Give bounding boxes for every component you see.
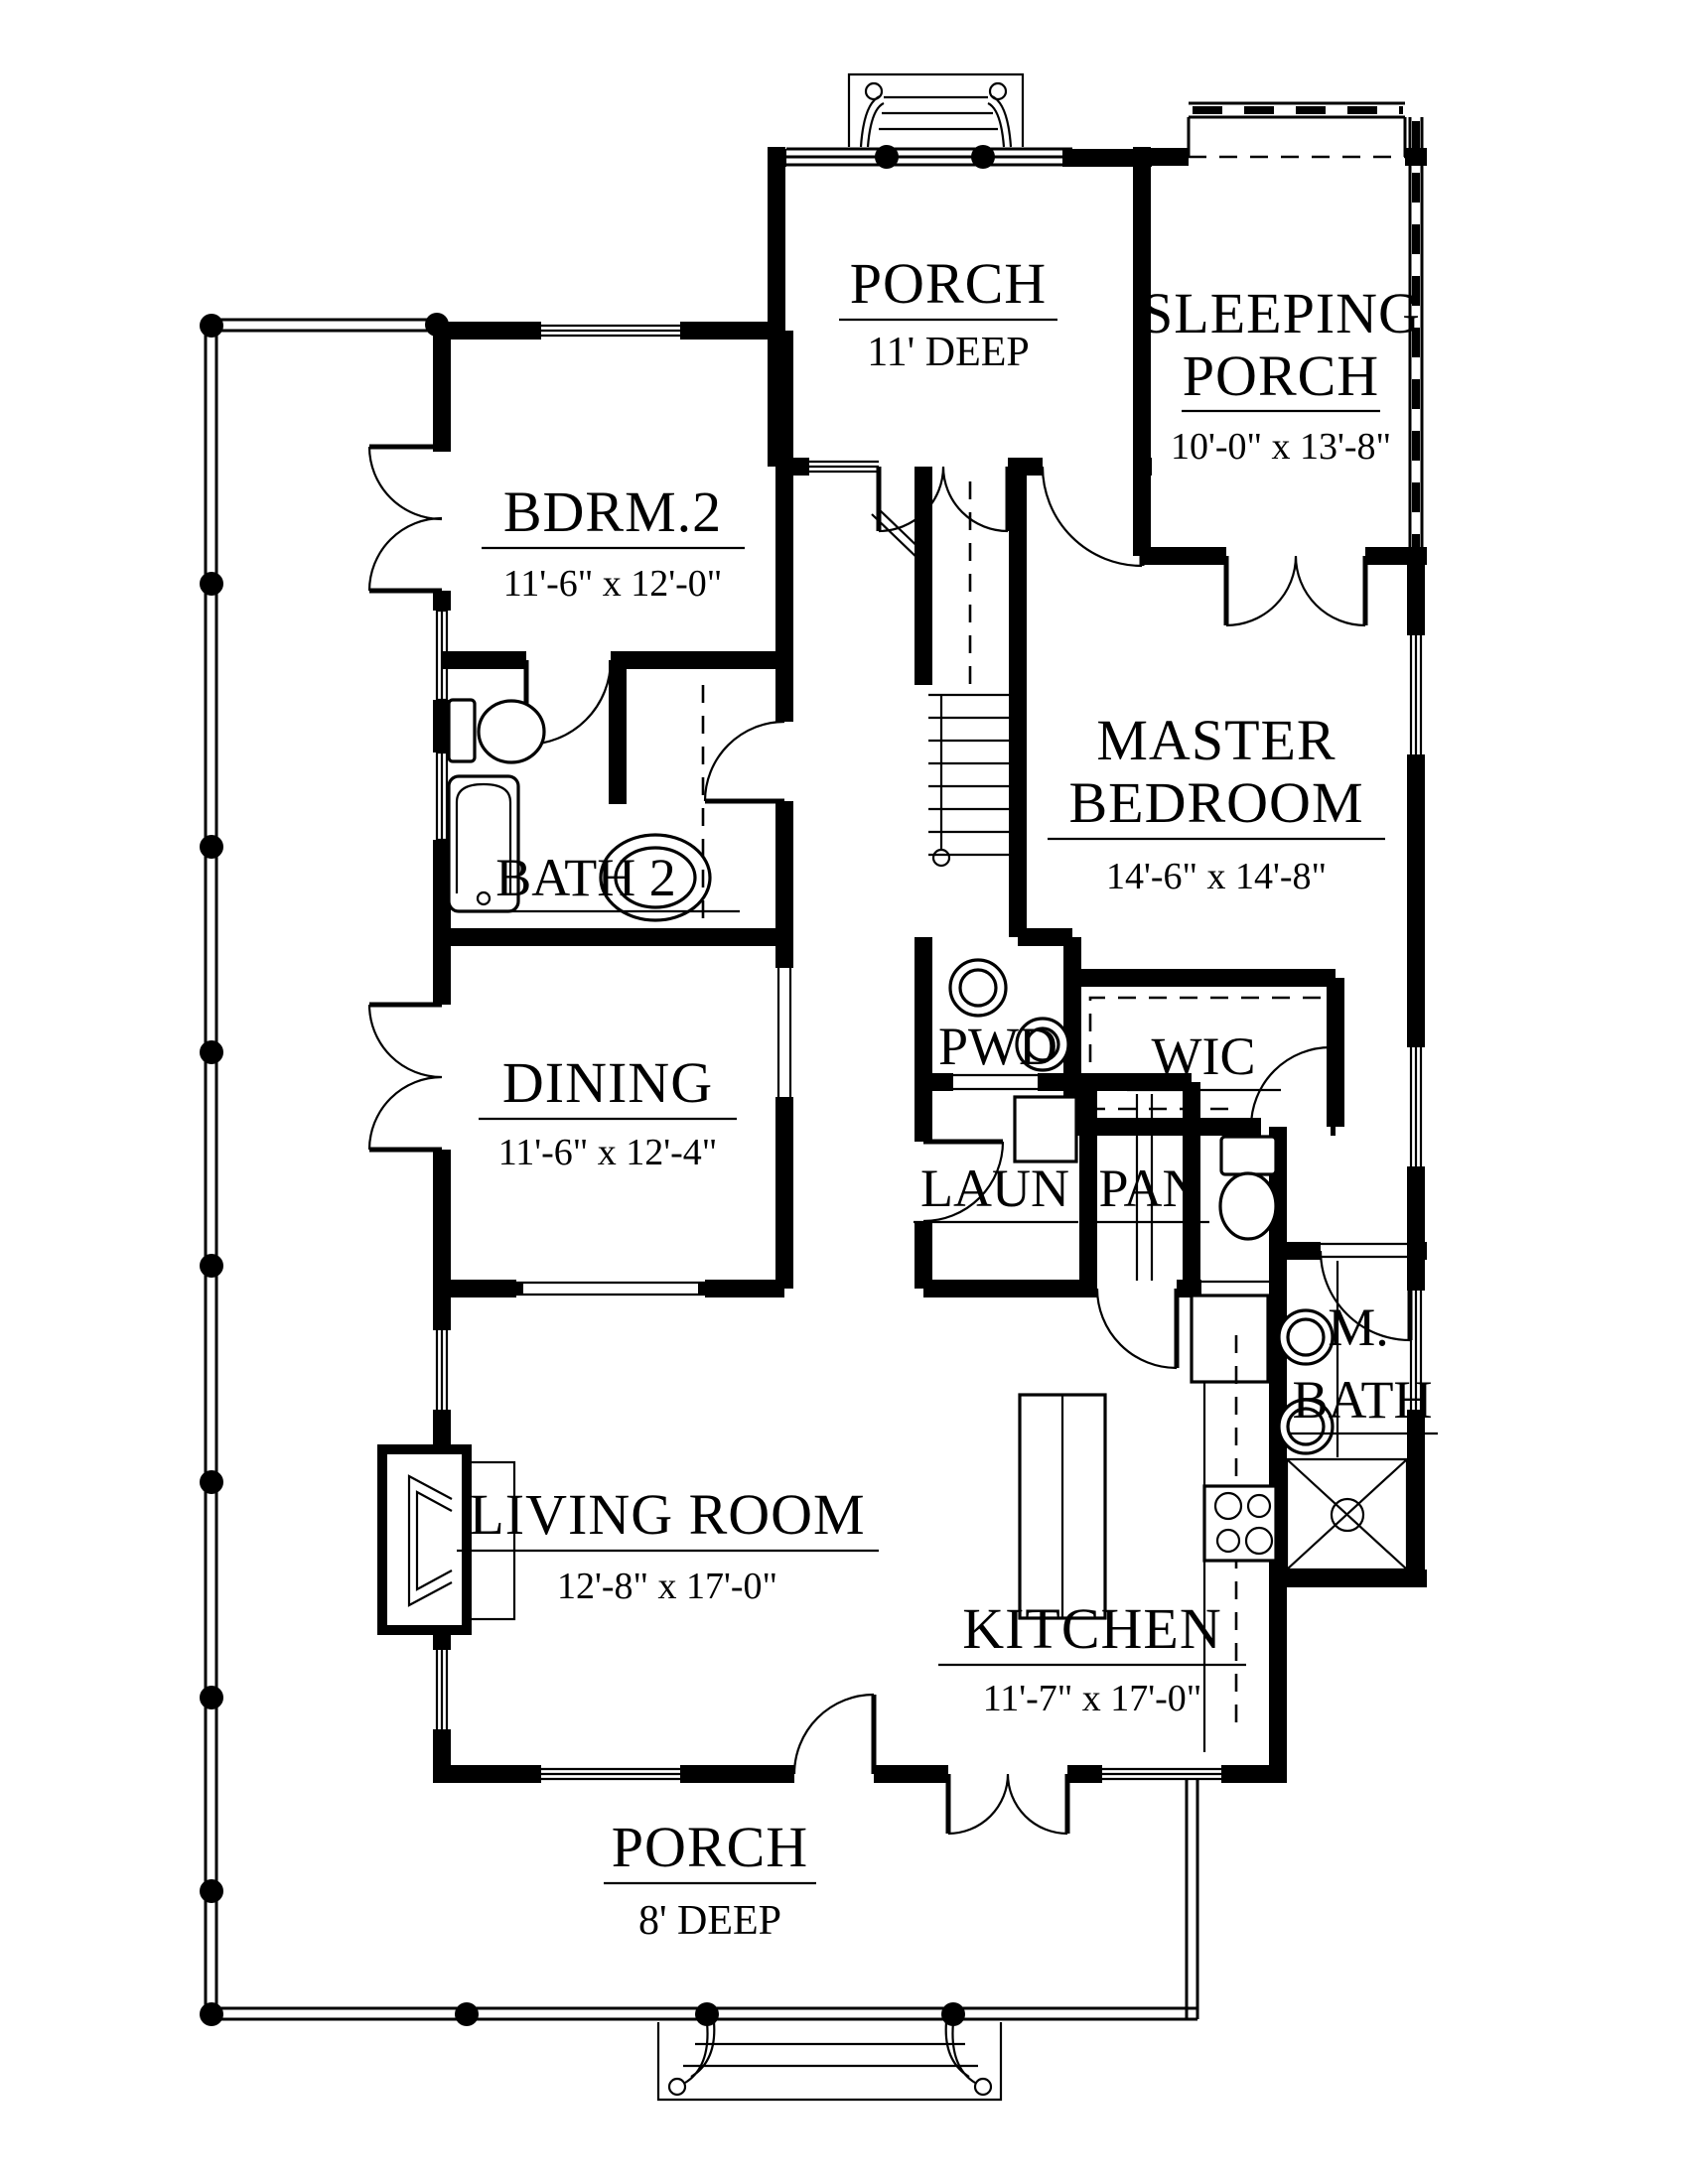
step-outline [658,2022,1001,2100]
porch-column [200,314,223,338]
porch-column [200,1686,223,1709]
label-living-name: LIVING ROOM [469,1482,865,1547]
label-dining-dim: 11'-6" x 12'-4" [498,1132,718,1173]
porch-column [455,2002,479,2026]
step-rails [861,96,1011,147]
label-living-dim: 12'-8" x 17'-0" [557,1566,777,1607]
toilet-bowl [1220,1173,1276,1239]
porch-column [875,145,899,169]
label-master-line1: MASTER [1096,708,1336,772]
label-sleeping-porch-line2: PORCH [1183,343,1379,408]
step-rails [685,2022,975,2083]
label-laundry-name: LAUN [920,1159,1069,1218]
label-porch-top-name: PORCH [850,251,1047,316]
newel-post [866,83,882,99]
label-bdrm2-dim: 11'-6" x 12'-0" [503,563,723,605]
label-bath2-name: BATH 2 [495,848,676,907]
washer [1015,1097,1076,1161]
porch-column [971,145,995,169]
label-kitchen-name: KITCHEN [962,1596,1222,1661]
staircase [928,481,1009,866]
front-entry-steps-bottom [658,2022,1001,2100]
porch-column [200,1254,223,1278]
porch-column [200,1470,223,1494]
label-dining-name: DINING [502,1050,713,1115]
refrigerator [1192,1296,1268,1382]
sink-basin [1288,1319,1324,1355]
newel-post [975,2079,991,2095]
label-pwd-name: PWD [938,1017,1057,1076]
firebox [409,1476,452,1605]
porch-column [200,1040,223,1064]
porch-column [200,2002,223,2026]
shower-pan [1287,1459,1407,1570]
stair-newel [933,850,949,866]
newel-post [990,83,1006,99]
porch-column [200,572,223,596]
porch-column [200,1879,223,1903]
room-labels: PORCH 11' DEEP SLEEPING PORCH 10'-0" x 1… [457,251,1438,1944]
fireplace-box [382,1449,467,1630]
label-master-line2: BEDROOM [1068,770,1363,835]
opening-post [509,1282,523,1296]
label-pantry-name: PAN [1098,1159,1200,1218]
toilet-tank [1221,1137,1276,1174]
label-kitchen-dim: 11'-7" x 17'-0" [983,1678,1202,1719]
opening-post [698,1282,712,1296]
label-wic-name: WIC [1152,1026,1256,1086]
label-porch-bottom-name: PORCH [612,1815,808,1879]
label-sleeping-porch-line1: SLEEPING [1141,281,1421,345]
label-porch-bottom-dim: 8' DEEP [638,1898,781,1944]
label-bdrm2-name: BDRM.2 [503,479,722,544]
sink-bowl [479,701,544,762]
sink-pedestal [449,700,475,761]
toilet-seat [960,970,996,1006]
floor-plan-sheet: PORCH 11' DEEP SLEEPING PORCH 10'-0" x 1… [0,0,1688,2184]
label-sleeping-porch-dim: 10'-0" x 13'-8" [1171,426,1391,468]
front-entry-steps-top [849,74,1023,147]
label-porch-top-dim: 11' DEEP [867,330,1030,375]
water-closet-fixtures [1220,1137,1276,1239]
label-master-bath-line1: M. [1328,1297,1389,1357]
label-master-dim: 14'-6" x 14'-8" [1106,856,1327,897]
porch-column [200,835,223,859]
label-master-bath-line2: BATH [1292,1370,1432,1430]
floor-plan-svg: PORCH 11' DEEP SLEEPING PORCH 10'-0" x 1… [0,0,1688,2184]
newel-post [669,2079,685,2095]
